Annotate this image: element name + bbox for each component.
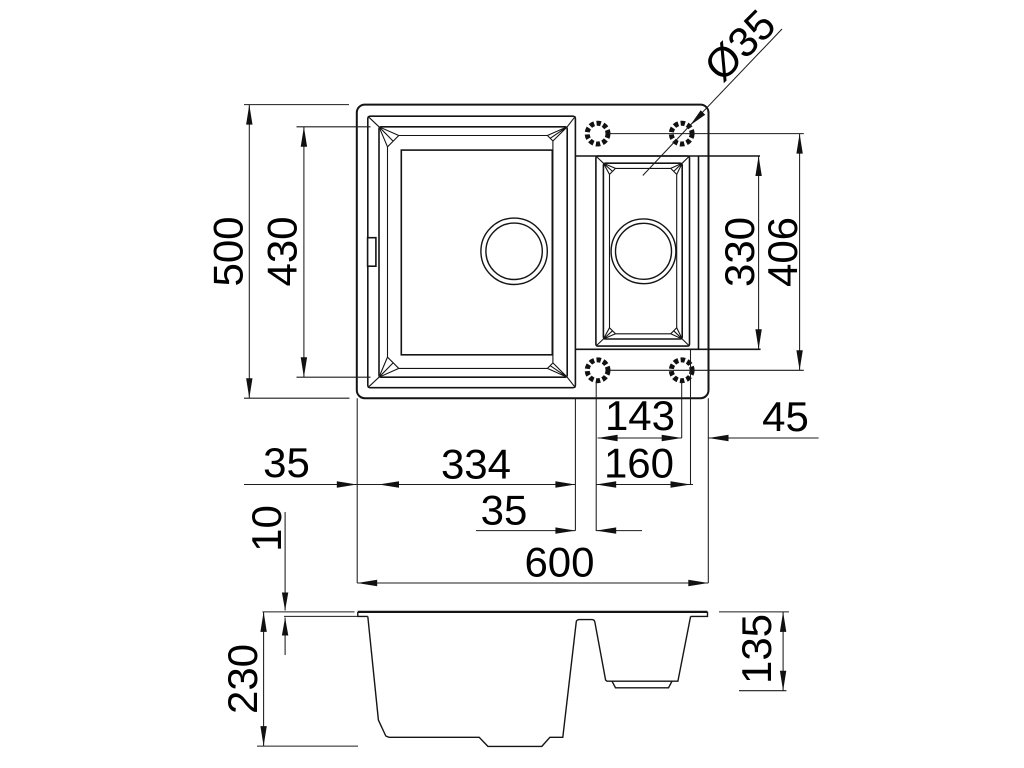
- svg-text:500: 500: [205, 216, 252, 286]
- svg-text:230: 230: [219, 644, 266, 714]
- svg-text:35: 35: [263, 439, 310, 486]
- svg-text:10: 10: [243, 505, 290, 552]
- svg-text:330: 330: [716, 217, 763, 287]
- svg-text:35: 35: [481, 487, 528, 534]
- svg-text:406: 406: [759, 217, 806, 287]
- svg-text:135: 135: [733, 614, 780, 684]
- svg-text:143: 143: [605, 392, 675, 439]
- svg-text:600: 600: [524, 539, 594, 586]
- svg-text:45: 45: [762, 393, 809, 440]
- svg-text:160: 160: [604, 440, 674, 487]
- svg-text:430: 430: [259, 216, 306, 286]
- svg-text:334: 334: [441, 441, 511, 488]
